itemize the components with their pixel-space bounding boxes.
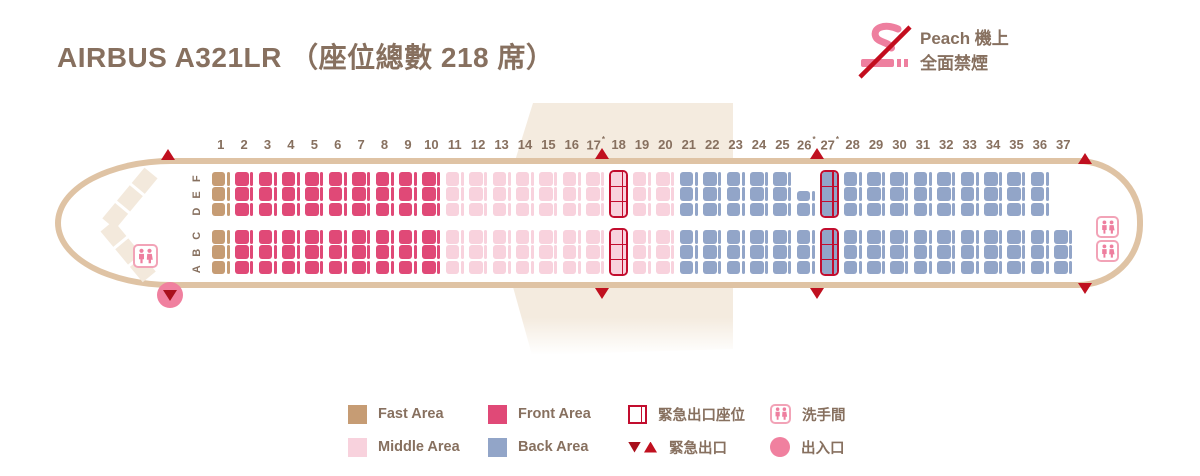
- row-number-24: 24: [747, 137, 770, 152]
- seat-strip: [788, 245, 791, 259]
- seat-pad: [422, 245, 436, 259]
- seat-strip: [742, 187, 745, 201]
- seat-strip: [414, 261, 417, 275]
- row-number-30: 30: [888, 137, 911, 152]
- triangle-up-icon: [644, 442, 657, 453]
- seat-pad: [469, 230, 483, 244]
- seat-block-row-33: [961, 230, 979, 276]
- seat-pad: [493, 203, 507, 217]
- seat-strip: [859, 172, 862, 186]
- seat-strip: [788, 261, 791, 275]
- seat-strip: [765, 203, 768, 217]
- seat-strip: [250, 261, 253, 275]
- seat-pad: [469, 203, 483, 217]
- seat-strip: [1069, 261, 1072, 275]
- entrance-door-marker: [157, 282, 183, 308]
- seat-pad: [305, 245, 319, 259]
- seat-2B: [235, 245, 253, 259]
- seat-strip: [554, 230, 557, 244]
- seat-22D: [703, 203, 721, 217]
- row-number-26: 26*: [794, 137, 817, 152]
- seat-strip: [391, 187, 394, 201]
- seat-strip: [765, 230, 768, 244]
- seat-30F: [890, 172, 908, 186]
- seat-pad: [212, 261, 226, 275]
- seat-pad: [446, 261, 460, 275]
- seat-strip: [250, 187, 253, 201]
- seat-pad: [1031, 261, 1045, 275]
- seat-strip: [320, 187, 323, 201]
- seat-27A: [822, 259, 837, 274]
- seat-15C: [539, 230, 557, 244]
- seat-block-row-34: [984, 172, 1002, 218]
- seat-1B: [212, 245, 230, 259]
- seat-8B: [376, 245, 394, 259]
- seat-21C: [680, 230, 698, 244]
- seat-pad: [352, 261, 366, 275]
- seat-pad: [656, 245, 670, 259]
- seat-pad: [680, 172, 694, 186]
- seat-13E: [493, 187, 511, 201]
- seat-pad: [305, 187, 319, 201]
- seat-1A: [212, 261, 230, 275]
- seat-pad: [399, 203, 413, 217]
- row-number-17: 17*: [583, 137, 606, 152]
- seat-6B: [329, 245, 347, 259]
- wing-lower: [505, 287, 733, 355]
- seat-2D: [235, 203, 253, 217]
- seat-pad: [890, 172, 904, 186]
- seat-pad: [844, 230, 858, 244]
- seat-pad: [961, 261, 975, 275]
- seat-block-row-16: [563, 230, 581, 276]
- seat-5D: [305, 203, 323, 217]
- seat-pad: [703, 172, 717, 186]
- seat-12F: [469, 172, 487, 186]
- seat-pad: [1031, 187, 1045, 201]
- seat-30A: [890, 261, 908, 275]
- seat-block-row-4: [282, 230, 300, 276]
- seat-pad: [984, 261, 998, 275]
- seat-strip: [250, 172, 253, 186]
- seat-block-row-28: [844, 230, 862, 276]
- seat-35F: [1007, 172, 1025, 186]
- seat-25A: [773, 261, 791, 275]
- seat-23E: [727, 187, 745, 201]
- seat-strip: [367, 261, 370, 275]
- seat-pad: [352, 245, 366, 259]
- seat-block-row-32: [937, 172, 955, 218]
- seat-strip: [882, 172, 885, 186]
- seat-pad: [539, 230, 553, 244]
- seat-32F: [937, 172, 955, 186]
- exit-seat-block-row-18: [609, 170, 628, 218]
- seat-pad: [259, 203, 273, 217]
- triangle-down-icon: [628, 442, 641, 453]
- exit-seat-block-row-27: [820, 170, 839, 218]
- seat-block-row-37: [1054, 230, 1072, 276]
- seat-pad: [469, 245, 483, 259]
- seat-pad: [493, 172, 507, 186]
- seat-block-row-4: [282, 172, 300, 218]
- seat-pad: [656, 230, 670, 244]
- seat-pad: [516, 172, 530, 186]
- seat-11F: [446, 172, 464, 186]
- legend-label: 緊急出口: [669, 437, 727, 458]
- seat-strip: [788, 230, 791, 244]
- seat-24C: [750, 230, 768, 244]
- seat-strip: [508, 187, 511, 201]
- seat-19B: [633, 245, 651, 259]
- seat-strip: [414, 203, 417, 217]
- seat-strip: [788, 172, 791, 186]
- seat-block-row-8: [376, 172, 394, 218]
- seat-block-row-25: [773, 172, 791, 218]
- seat-pad: [890, 187, 904, 201]
- seat-strip: [461, 187, 464, 201]
- seat-strip: [601, 203, 604, 217]
- seat-35A: [1007, 261, 1025, 275]
- seat-strip: [274, 261, 277, 275]
- seat-strip: [297, 245, 300, 259]
- seat-block-row-7: [352, 230, 370, 276]
- row-number-27: 27*: [818, 137, 841, 152]
- seat-strip: [484, 203, 487, 217]
- seat-strip: [297, 187, 300, 201]
- seat-15E: [539, 187, 557, 201]
- seat-37C: [1054, 230, 1072, 244]
- seat-strip: [1022, 203, 1025, 217]
- seat-14F: [516, 172, 534, 186]
- seat-pad: [867, 245, 881, 259]
- seat-strip: [929, 187, 932, 201]
- seat-pad: [797, 261, 811, 275]
- seat-18D: [611, 201, 626, 216]
- seat-7A: [352, 261, 370, 275]
- seat-31D: [914, 203, 932, 217]
- seat-5E: [305, 187, 323, 201]
- seat-18F: [611, 172, 626, 186]
- seat-strip: [578, 230, 581, 244]
- seat-block-row-1: [212, 230, 230, 276]
- seat-pad: [352, 172, 366, 186]
- seat-block-row-26: [797, 172, 815, 218]
- seat-strip: [695, 245, 698, 259]
- seat-strip: [1046, 187, 1049, 201]
- seat-pad: [446, 172, 460, 186]
- seat-pad: [1031, 203, 1045, 217]
- seat-37B: [1054, 245, 1072, 259]
- seat-strip: [812, 230, 815, 244]
- seat-9F: [399, 172, 417, 186]
- row-number-28: 28: [841, 137, 864, 152]
- seat-pad: [984, 245, 998, 259]
- seat-strip: [929, 172, 932, 186]
- seat-strip: [344, 203, 347, 217]
- seat-5F: [305, 172, 323, 186]
- seat-strip: [578, 203, 581, 217]
- seat-pad: [1007, 172, 1021, 186]
- seat-16D: [563, 203, 581, 217]
- seat-strip: [414, 172, 417, 186]
- seat-pad: [961, 230, 975, 244]
- legend-label: Front Area: [518, 406, 591, 422]
- seat-pad: [539, 172, 553, 186]
- seat-pad: [656, 172, 670, 186]
- seat-pad: [914, 172, 928, 186]
- seat-strip: [320, 203, 323, 217]
- seat-pad: [750, 245, 764, 259]
- seat-strip: [227, 187, 230, 201]
- seat-strip: [882, 230, 885, 244]
- seat-pad: [1054, 230, 1068, 244]
- seat-strip: [695, 230, 698, 244]
- seat-strip: [905, 245, 908, 259]
- seat-block-row-15: [539, 172, 557, 218]
- seat-strip: [648, 230, 651, 244]
- seat-pad: [586, 203, 600, 217]
- seat-block-row-19: [633, 230, 651, 276]
- seat-26E: [797, 191, 815, 201]
- seat-pad: [914, 187, 928, 201]
- seat-strip: [929, 261, 932, 275]
- seat-strip: [414, 245, 417, 259]
- seat-block-row-25: [773, 230, 791, 276]
- seat-37A: [1054, 261, 1072, 275]
- seat-pad: [656, 187, 670, 201]
- seat-pad: [1007, 187, 1021, 201]
- seat-10A: [422, 261, 440, 275]
- seat-strip: [1069, 230, 1072, 244]
- seat-strip: [952, 230, 955, 244]
- seat-36C: [1031, 230, 1049, 244]
- seat-pad: [703, 187, 717, 201]
- seat-pad: [235, 172, 249, 186]
- legend-item-exit-seat: 緊急出口座位: [628, 404, 770, 424]
- seat-13A: [493, 261, 511, 275]
- seat-strip: [414, 230, 417, 244]
- seat-pad: [235, 245, 249, 259]
- seat-23A: [727, 261, 745, 275]
- seat-pad: [750, 187, 764, 201]
- seat-pad: [399, 261, 413, 275]
- exit-seat-block-row-18: [609, 228, 628, 276]
- seat-pad: [867, 261, 881, 275]
- seat-strip: [859, 203, 862, 217]
- seat-strip: [601, 187, 604, 201]
- seat-pad: [329, 245, 343, 259]
- seat-block-row-24: [750, 172, 768, 218]
- seat-pad: [680, 245, 694, 259]
- legend-label: Middle Area: [378, 439, 460, 455]
- seat-pad: [376, 245, 390, 259]
- seat-22C: [703, 230, 721, 244]
- row-number-10: 10: [420, 137, 443, 152]
- lavatory-icon: [770, 404, 791, 424]
- row-number-2: 2: [232, 137, 255, 152]
- seat-3D: [259, 203, 277, 217]
- seat-strip: [461, 203, 464, 217]
- legend-label: 緊急出口座位: [658, 404, 745, 425]
- seat-pad: [937, 187, 951, 201]
- seat-21E: [680, 187, 698, 201]
- seat-strip: [952, 187, 955, 201]
- seat-strip: [601, 230, 604, 244]
- seat-strip: [765, 172, 768, 186]
- seat-33E: [961, 187, 979, 201]
- seat-pad: [422, 187, 436, 201]
- seat-27B: [822, 244, 837, 259]
- seat-strip: [297, 203, 300, 217]
- seat-strip: [952, 245, 955, 259]
- seat-14B: [516, 245, 534, 259]
- seat-14D: [516, 203, 534, 217]
- seat-pad: [937, 245, 951, 259]
- seat-30D: [890, 203, 908, 217]
- seat-strip: [484, 245, 487, 259]
- seat-36D: [1031, 203, 1049, 217]
- seat-pad: [773, 245, 787, 259]
- seat-6A: [329, 261, 347, 275]
- seat-strip: [227, 172, 230, 186]
- seat-pad: [844, 245, 858, 259]
- seat-pad: [773, 187, 787, 201]
- seat-34E: [984, 187, 1002, 201]
- seat-strip: [437, 245, 440, 259]
- seat-pad: [914, 245, 928, 259]
- seat-29D: [867, 203, 885, 217]
- seat-block-row-3: [259, 172, 277, 218]
- seat-strip: [484, 261, 487, 275]
- seat-pad: [773, 261, 787, 275]
- seat-strip: [508, 230, 511, 244]
- seat-strip: [531, 230, 534, 244]
- seat-block-row-28: [844, 172, 862, 218]
- seat-5B: [305, 245, 323, 259]
- seat-strip: [905, 230, 908, 244]
- seat-strip: [437, 187, 440, 201]
- seat-pad: [961, 172, 975, 186]
- seat-32A: [937, 261, 955, 275]
- seat-pad: [890, 261, 904, 275]
- seat-pad: [727, 203, 741, 217]
- emergency-exit-down-row26-icon: [810, 288, 824, 299]
- seat-strip: [601, 245, 604, 259]
- seat-pad: [235, 203, 249, 217]
- seat-block-row-19: [633, 172, 651, 218]
- seat-pad: [914, 230, 928, 244]
- seat-pad: [563, 203, 577, 217]
- seat-pad: [633, 172, 647, 186]
- seat-11B: [446, 245, 464, 259]
- seat-block-row-20: [656, 172, 674, 218]
- emergency-exit-down-nose-icon: [163, 290, 177, 301]
- seat-9C: [399, 230, 417, 244]
- seat-24B: [750, 245, 768, 259]
- seat-pad: [750, 261, 764, 275]
- seat-block-row-12: [469, 230, 487, 276]
- lavatory-rear-upper-icon: [1096, 216, 1119, 238]
- seat-pad: [493, 187, 507, 201]
- seat-block-row-12: [469, 172, 487, 218]
- seat-33C: [961, 230, 979, 244]
- seat-10D: [422, 203, 440, 217]
- seat-strip: [765, 187, 768, 201]
- seat-pad: [961, 203, 975, 217]
- seat-strip: [929, 245, 932, 259]
- seat-32C: [937, 230, 955, 244]
- seat-pad: [446, 230, 460, 244]
- seat-24D: [750, 203, 768, 217]
- no-smoking-line2: 全面禁煙: [920, 51, 1009, 76]
- seat-strip: [671, 172, 674, 186]
- seat-11E: [446, 187, 464, 201]
- seat-pad: [493, 230, 507, 244]
- seat-19F: [633, 172, 651, 186]
- seat-pad: [633, 230, 647, 244]
- seat-strip: [227, 230, 230, 244]
- seat-strip: [718, 172, 721, 186]
- seat-34F: [984, 172, 1002, 186]
- seat-28D: [844, 203, 862, 217]
- seat-strip: [788, 203, 791, 217]
- seat-26D: [797, 203, 815, 217]
- seat-25B: [773, 245, 791, 259]
- seat-strip: [391, 245, 394, 259]
- seat-18A: [611, 259, 626, 274]
- seat-pad: [399, 187, 413, 201]
- seat-23C: [727, 230, 745, 244]
- seat-14A: [516, 261, 534, 275]
- legend-label: Back Area: [518, 439, 588, 455]
- seat-pad: [212, 230, 226, 244]
- seat-1C: [212, 230, 230, 244]
- seat-19C: [633, 230, 651, 244]
- seat-block-row-21: [680, 172, 698, 218]
- seat-6E: [329, 187, 347, 201]
- row-number-5: 5: [303, 137, 326, 152]
- seat-strip: [461, 245, 464, 259]
- seat-block-row-30: [890, 172, 908, 218]
- seat-pad: [1031, 172, 1045, 186]
- seat-strip: [320, 245, 323, 259]
- seat-pad: [539, 245, 553, 259]
- seat-pad: [422, 261, 436, 275]
- seat-9A: [399, 261, 417, 275]
- seat-pad: [773, 203, 787, 217]
- seat-pad: [937, 172, 951, 186]
- back-area-swatch-icon: [488, 438, 507, 457]
- seat-3A: [259, 261, 277, 275]
- seat-block-row-3: [259, 230, 277, 276]
- seat-strip: [859, 261, 862, 275]
- legend: Fast Area Front Area 緊急出口座位 洗手間 Middle: [348, 404, 846, 457]
- seat-30B: [890, 245, 908, 259]
- seat-strip: [508, 261, 511, 275]
- seat-strip: [671, 230, 674, 244]
- seat-8E: [376, 187, 394, 201]
- seat-7D: [352, 203, 370, 217]
- seat-pad: [844, 172, 858, 186]
- seat-pad: [703, 203, 717, 217]
- row-number-32: 32: [935, 137, 958, 152]
- seat-block-row-26: [797, 230, 815, 276]
- seat-pad: [867, 172, 881, 186]
- seat-24F: [750, 172, 768, 186]
- seat-pad: [656, 261, 670, 275]
- seat-strip: [976, 261, 979, 275]
- seat-6F: [329, 172, 347, 186]
